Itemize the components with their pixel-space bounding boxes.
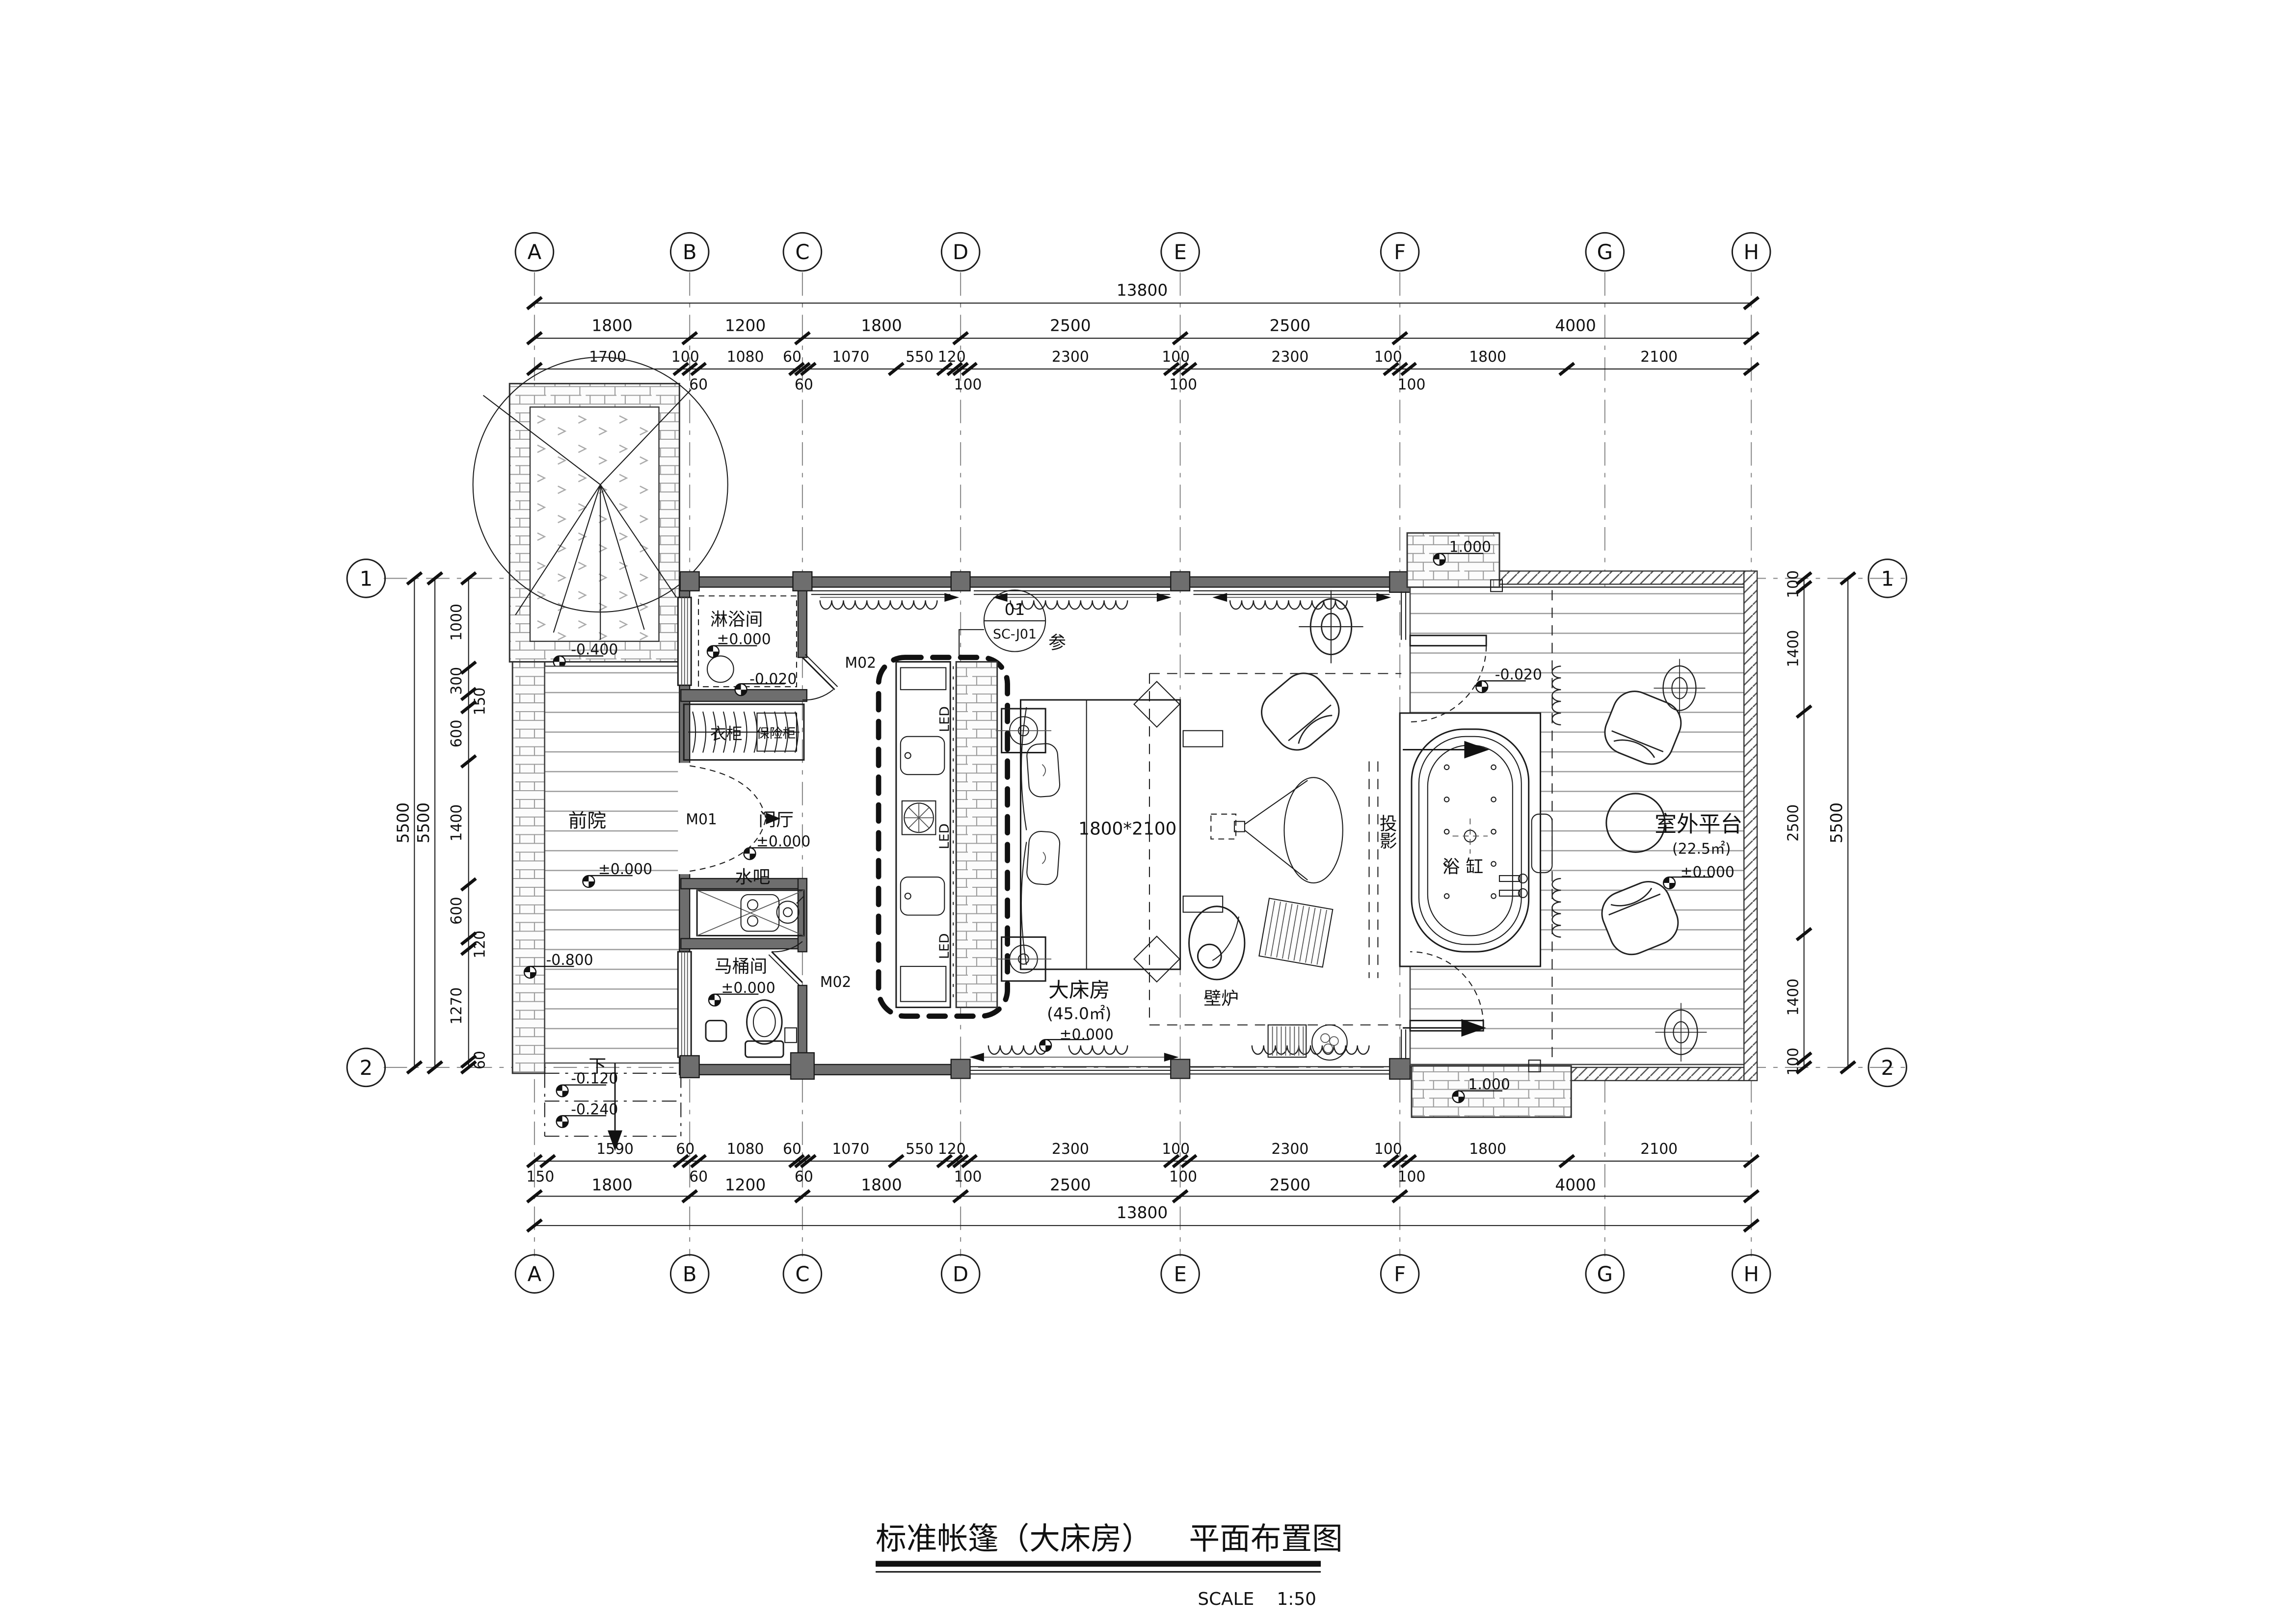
axis-label: C xyxy=(795,240,809,264)
level: ±0.000 xyxy=(717,631,771,648)
dim: 150 xyxy=(526,1169,554,1186)
dim: 60 xyxy=(795,376,813,394)
level: -0.400 xyxy=(571,641,618,659)
level: -0.240 xyxy=(571,1101,618,1118)
dim: 100 xyxy=(1374,348,1402,366)
firewood xyxy=(1268,1025,1347,1060)
bedroom: 01 SC-J01 参 LED LED LED xyxy=(879,590,1401,1060)
toilet-icon xyxy=(746,1000,784,1057)
ceiling-lamp-icon xyxy=(1299,590,1363,663)
dim: 5500 xyxy=(1827,802,1846,843)
axis-label: E xyxy=(1174,240,1186,264)
wardrobe: 衣柜 保险柜 xyxy=(684,704,804,760)
axis-label: A xyxy=(528,1262,542,1286)
dim: 60 xyxy=(783,348,801,366)
dim: 60 xyxy=(676,1141,694,1158)
room-label: 水吧 xyxy=(735,867,771,887)
room-label: 室外平台 xyxy=(1655,811,1742,837)
dim: 1400 xyxy=(1785,979,1802,1016)
axis-label: G xyxy=(1597,240,1613,264)
dim: 100 xyxy=(1398,1169,1426,1186)
detail-ref: SC-J01 xyxy=(993,627,1037,642)
dim: 4000 xyxy=(1555,1176,1596,1195)
dim: 60 xyxy=(783,1141,801,1158)
wardrobe-label: 衣柜 xyxy=(710,725,743,744)
level: ±0.000 xyxy=(1060,1026,1114,1043)
dim: 1200 xyxy=(725,316,766,335)
dim: 300 xyxy=(448,667,465,695)
dim: 1080 xyxy=(727,1141,764,1158)
terrace: 1.000 1.000 浴缸 -0.020 xyxy=(1400,533,1757,1117)
water-bar: 水吧 xyxy=(697,867,804,935)
door-label: M01 xyxy=(686,811,717,828)
dim: 550 xyxy=(906,1141,934,1158)
scale-label: SCALE xyxy=(1198,1589,1254,1609)
door-label: M02 xyxy=(845,654,876,671)
toilet-room: 马桶间 ±0.000 M02 xyxy=(706,941,851,1057)
pillow-icon xyxy=(1026,743,1061,798)
level: 1.000 xyxy=(1449,539,1491,556)
dim: 1400 xyxy=(1785,630,1802,667)
dim: 100 xyxy=(1162,1141,1190,1158)
curtain-icon xyxy=(969,1045,1369,1062)
dim: 2300 xyxy=(1052,1141,1089,1158)
dimensions-bottom: 1590 60 1080 60 1070 550 120 2300 100 23… xyxy=(526,1141,1759,1231)
dim: 550 xyxy=(906,348,934,366)
dim: 60 xyxy=(472,1051,489,1069)
dim: 2100 xyxy=(1640,348,1678,366)
led-label: LED xyxy=(937,933,952,959)
dim: 1070 xyxy=(832,348,869,366)
pillow-icon xyxy=(1026,830,1061,885)
drawing-title-type: 平面布置图 xyxy=(1189,1520,1343,1556)
curtain-icon xyxy=(820,593,1391,609)
detail-number: 01 xyxy=(1005,600,1025,619)
dim: 600 xyxy=(448,897,465,925)
dim: 2500 xyxy=(1270,316,1310,335)
room-area: (45.0㎡) xyxy=(1047,1004,1111,1023)
dim: 100 xyxy=(954,1169,982,1186)
bed-size: 1800*2100 xyxy=(1078,819,1176,839)
dim: 2300 xyxy=(1052,348,1089,366)
scale-value: 1:50 xyxy=(1277,1589,1316,1609)
level: -0.800 xyxy=(546,952,593,969)
dim: 60 xyxy=(795,1169,813,1186)
dim: 5500 xyxy=(394,802,412,843)
dim: 2300 xyxy=(1271,1141,1308,1158)
door-m02-shower: M02 xyxy=(802,654,876,700)
fireplace-label: 壁炉 xyxy=(1203,989,1239,1009)
dim: 60 xyxy=(689,376,708,394)
rug-icon xyxy=(1259,898,1333,967)
dim: 120 xyxy=(938,1141,966,1158)
room-label: 马桶间 xyxy=(715,957,767,977)
axis-label: F xyxy=(1394,240,1406,264)
level: ±0.000 xyxy=(1680,864,1734,881)
cushion-icon xyxy=(1134,936,1179,982)
bed: 1800*2100 xyxy=(1020,682,1223,982)
dim: 5500 xyxy=(414,802,433,843)
axis-label: 1 xyxy=(1881,566,1894,590)
dim: 100 xyxy=(671,348,699,366)
dim: 4000 xyxy=(1555,316,1596,335)
dim: 1070 xyxy=(832,1141,869,1158)
axis-label: F xyxy=(1394,1262,1406,1286)
dim: 100 xyxy=(1785,570,1802,598)
dim: 1000 xyxy=(448,604,465,641)
front-yard: 前院 ±0.000 -0.800 下 -0.120 -0.240 xyxy=(512,662,681,1151)
dim: 100 xyxy=(1374,1141,1402,1158)
door-label: M02 xyxy=(820,974,852,991)
dim: 100 xyxy=(1169,376,1197,394)
axis-label: 1 xyxy=(360,566,373,590)
dim: 1080 xyxy=(727,348,764,366)
dim: 1400 xyxy=(448,804,465,842)
stool-icon xyxy=(902,801,936,835)
projector: 投影 xyxy=(1211,761,1397,978)
dim: 1800 xyxy=(1469,348,1506,366)
basin-icon xyxy=(901,877,945,915)
axis-label: D xyxy=(953,1262,968,1286)
dim: 120 xyxy=(938,348,966,366)
floor-plan-drawing: A B C D E F G H A B C D E F G H 1 2 1 2 xyxy=(0,0,2296,1624)
shower-room: 淋浴间 ±0.000 -0.020 M02 xyxy=(698,596,876,700)
dim: 100 xyxy=(1162,348,1190,366)
title-block: 标准帐篷（大床房） 平面布置图 SCALE 1:50 xyxy=(876,1520,1343,1609)
axis-label: B xyxy=(683,1262,697,1286)
level: ±0.000 xyxy=(721,980,775,997)
room-label: 淋浴间 xyxy=(710,610,763,630)
detail-note: 参 xyxy=(1048,633,1066,653)
armchair-icon xyxy=(1253,665,1348,759)
dim: 13800 xyxy=(1117,1203,1168,1222)
dim: 60 xyxy=(689,1169,708,1186)
room-area: (22.5㎡) xyxy=(1672,840,1731,857)
dim: 150 xyxy=(472,688,489,716)
cushion-icon xyxy=(1134,682,1179,727)
waste-bin-icon xyxy=(706,1020,726,1041)
dim: 100 xyxy=(1169,1169,1197,1186)
dim: 2500 xyxy=(1050,316,1091,335)
dimensions-right: 100 1400 2500 1400 100 5500 xyxy=(1785,570,1855,1076)
room-label: 大床房 xyxy=(1048,978,1110,1002)
dim: 1800 xyxy=(591,316,632,335)
dim: 1800 xyxy=(1469,1141,1506,1158)
axis-label: 2 xyxy=(360,1056,373,1080)
grid-bubbles-bottom: A B C D E F G H xyxy=(515,1255,1770,1293)
safe-label: 保险柜 xyxy=(756,726,796,742)
bedside-bench-icon xyxy=(1183,731,1223,747)
level: ±0.000 xyxy=(598,861,652,878)
projection-label: 投影 xyxy=(1377,814,1397,850)
dim: 1270 xyxy=(448,987,465,1025)
basin-icon xyxy=(901,737,945,775)
axis-label: B xyxy=(683,240,697,264)
dim: 2500 xyxy=(1050,1176,1091,1195)
dim: 2500 xyxy=(1270,1176,1310,1195)
led-label: LED xyxy=(937,706,952,732)
dim: 1200 xyxy=(725,1176,766,1195)
led-label: LED xyxy=(937,824,952,850)
level: ±0.000 xyxy=(756,833,810,850)
axis-label: H xyxy=(1743,1262,1759,1286)
entry-steps: 下 -0.120 -0.240 xyxy=(545,1056,681,1151)
level: -0.020 xyxy=(749,670,797,688)
paper-holder-icon xyxy=(785,1028,797,1042)
level: -0.120 xyxy=(571,1070,618,1088)
vanity-counter: LED LED LED xyxy=(896,662,953,1008)
axis-label: 2 xyxy=(1881,1056,1894,1080)
dim: 2300 xyxy=(1271,348,1308,366)
projection-screen xyxy=(1369,761,1378,978)
kettle-icon xyxy=(777,901,799,923)
dim: 600 xyxy=(448,719,465,747)
level: 1.000 xyxy=(1468,1076,1510,1093)
dim: 2100 xyxy=(1640,1141,1678,1158)
dimensions-top: 13800 1800 1200 1800 2500 2500 4000 1700… xyxy=(527,281,1759,394)
dim: 100 xyxy=(1398,376,1426,394)
dimensions-left: 5500 5500 1000 300 150 600 1400 600 120 … xyxy=(394,573,488,1073)
fireplace: 壁炉 xyxy=(1189,906,1245,1009)
dim: 100 xyxy=(1785,1048,1802,1076)
room-label: 前院 xyxy=(568,810,607,832)
bedside-bench-icon xyxy=(1183,896,1223,912)
dim: 120 xyxy=(472,931,489,958)
entry-hall: 门厅 ±0.000 M01 xyxy=(686,766,810,871)
axis-label: H xyxy=(1743,240,1759,264)
door-m01: M01 xyxy=(686,766,780,871)
dim: 1800 xyxy=(591,1176,632,1195)
axis-label: A xyxy=(528,240,542,264)
level: -0.020 xyxy=(1495,666,1542,683)
drawing-title: 标准帐篷（大床房） xyxy=(876,1520,1152,1556)
axis-label: E xyxy=(1174,1262,1186,1286)
dim: 1800 xyxy=(861,1176,902,1195)
dim: 13800 xyxy=(1117,281,1168,300)
bathtub-label: 浴缸 xyxy=(1442,857,1489,877)
axis-label: G xyxy=(1597,1262,1613,1286)
axis-label: D xyxy=(953,240,968,264)
dim: 1800 xyxy=(861,316,902,335)
dim: 100 xyxy=(954,376,982,394)
stone-feature-wall xyxy=(956,662,997,1008)
axis-label: C xyxy=(795,1262,809,1286)
dim: 2500 xyxy=(1785,804,1802,842)
grid-bubbles-top: A B C D E F G H xyxy=(515,233,1770,271)
detail-bubble: 01 SC-J01 参 xyxy=(959,590,1066,657)
